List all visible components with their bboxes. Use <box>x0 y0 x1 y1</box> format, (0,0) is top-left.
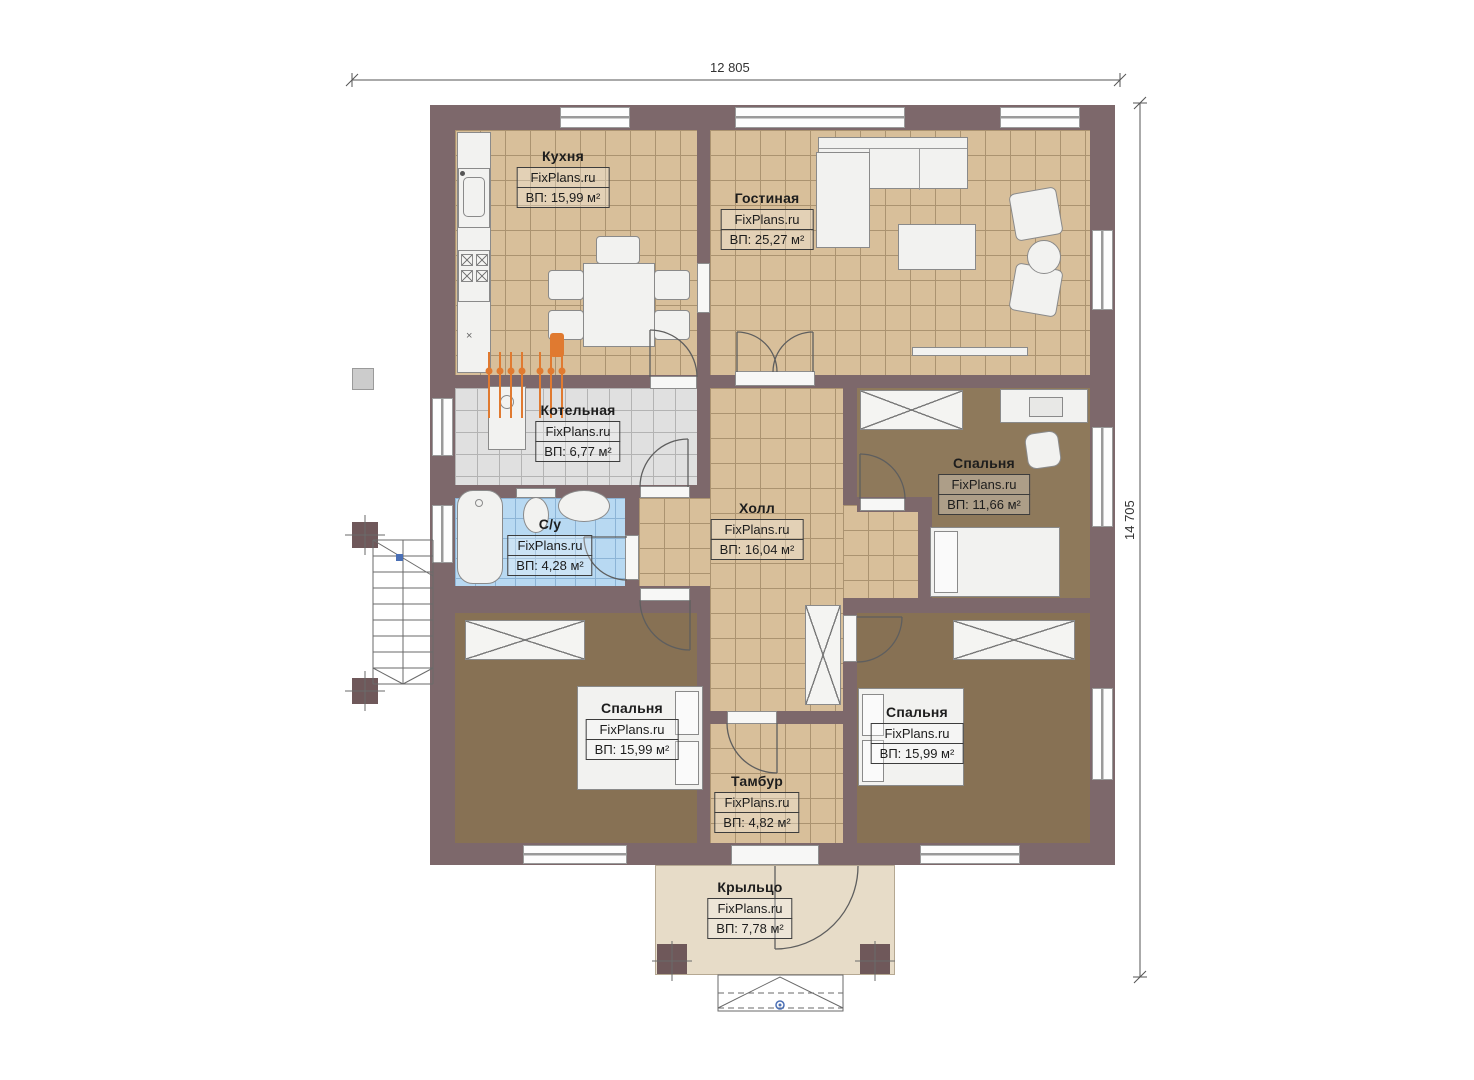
wardrobe <box>953 620 1075 660</box>
brand-watermark: FixPlans.ru <box>711 519 804 540</box>
room-label-living: Гостиная FixPlans.ru ВП: 25,27 м² <box>721 190 814 250</box>
room-label-hall: Холл FixPlans.ru ВП: 16,04 м² <box>711 500 804 560</box>
kitchen-chair <box>654 270 690 300</box>
coffee-table <box>898 224 976 270</box>
wall-kitchen-living-upper <box>697 130 710 263</box>
wall-bedroom-br-top <box>843 598 1090 613</box>
brand-watermark: FixPlans.ru <box>871 723 964 744</box>
window-bedroom-tr-right <box>1092 427 1113 527</box>
room-area: ВП: 15,99 м² <box>517 187 610 208</box>
window-bedroom-br-bottom <box>920 845 1020 864</box>
room-name: Крыльцо <box>707 879 792 895</box>
room-label-porch: Крыльцо FixPlans.ru ВП: 7,78 м² <box>707 879 792 939</box>
floor-plan: × <box>0 0 1474 1080</box>
side-table <box>1027 240 1061 274</box>
wall-kitchen-living-lower <box>697 313 710 375</box>
brand-watermark: FixPlans.ru <box>714 792 799 813</box>
stair-post <box>352 522 378 548</box>
room-name: Котельная <box>535 402 620 418</box>
room-area: ВП: 4,28 м² <box>507 555 592 576</box>
brand-watermark: FixPlans.ru <box>721 209 814 230</box>
room-label-vestibule: Тамбур FixPlans.ru ВП: 4,82 м² <box>714 773 799 833</box>
door-bedroom-br <box>843 615 857 662</box>
window-boiler-left <box>432 398 453 456</box>
room-area: ВП: 25,27 м² <box>721 229 814 250</box>
door-kitchen-hall <box>650 376 697 389</box>
room-area: ВП: 16,04 м² <box>711 539 804 560</box>
brand-watermark: FixPlans.ru <box>535 421 620 442</box>
stair-post <box>352 678 378 704</box>
door-boiler <box>640 486 690 498</box>
window-living-top-right <box>1000 107 1080 128</box>
room-name: Гостиная <box>721 190 814 206</box>
room-name: Спальня <box>871 704 964 720</box>
kitchen-table <box>583 263 655 347</box>
window-living-top <box>735 107 905 128</box>
room-name: Холл <box>711 500 804 516</box>
room-name: Кухня <box>517 148 610 164</box>
room-area: ВП: 7,78 м² <box>707 918 792 939</box>
brand-watermark: FixPlans.ru <box>517 167 610 188</box>
window-bedroom-bl-bottom <box>523 845 627 864</box>
radiator <box>550 333 564 357</box>
kitchen-chair <box>654 310 690 340</box>
brand-watermark: FixPlans.ru <box>938 474 1030 495</box>
wall-hall-bedroom-tr <box>843 388 857 505</box>
brand-watermark: FixPlans.ru <box>586 719 679 740</box>
window-bedroom-br-right <box>1092 688 1113 780</box>
kitchen-chair <box>548 270 584 300</box>
wardrobe <box>860 390 963 430</box>
kitchen-chair <box>596 236 640 264</box>
door-hall-vestibule <box>727 711 777 724</box>
room-name: Спальня <box>938 455 1030 471</box>
porch-post <box>657 944 687 974</box>
room-name: С/у <box>507 516 592 532</box>
dimension-height-label: 14 705 <box>1122 500 1137 540</box>
dimension-width-label: 12 805 <box>710 60 750 75</box>
room-name: Тамбур <box>714 773 799 789</box>
door-bathroom <box>625 535 639 580</box>
bathtub <box>457 490 503 584</box>
tv-stand <box>912 347 1028 356</box>
sofa-chaise <box>816 152 870 248</box>
pass-through-hatch <box>697 263 710 313</box>
room-label-bedroom-tr: Спальня FixPlans.ru ВП: 11,66 м² <box>938 455 1030 515</box>
kitchen-stove <box>458 250 490 302</box>
room-area: ВП: 15,99 м² <box>871 743 964 764</box>
room-label-bathroom: С/у FixPlans.ru ВП: 4,28 м² <box>507 516 592 576</box>
hall-right-arm-floor <box>843 505 918 598</box>
window-kitchen-top <box>560 107 630 128</box>
room-area: ВП: 15,99 м² <box>586 739 679 760</box>
brand-watermark: FixPlans.ru <box>507 535 592 556</box>
armchair <box>1008 186 1064 242</box>
window-bathroom-left <box>432 505 453 563</box>
porch-post <box>860 944 890 974</box>
bed-single <box>930 527 1060 597</box>
door-front-entrance <box>731 845 819 865</box>
door-bedroom-bl <box>640 588 690 601</box>
room-area: ВП: 11,66 м² <box>938 494 1030 515</box>
window-living-right <box>1092 230 1113 310</box>
room-label-kitchen: Кухня FixPlans.ru ВП: 15,99 м² <box>517 148 610 208</box>
door-bedroom-tr <box>860 498 905 511</box>
exterior-marker-square <box>352 368 374 390</box>
wall-boiler-hall <box>697 388 710 498</box>
door-living-hall <box>735 371 815 386</box>
room-label-boiler: Котельная FixPlans.ru ВП: 6,77 м² <box>535 402 620 462</box>
room-name: Спальня <box>586 700 679 716</box>
wall-corridor-bedroom-br <box>843 662 857 843</box>
room-label-bedroom-br: Спальня FixPlans.ru ВП: 15,99 м² <box>871 704 964 764</box>
desk <box>1000 389 1088 423</box>
room-area: ВП: 6,77 м² <box>535 441 620 462</box>
room-label-bedroom-bl: Спальня FixPlans.ru ВП: 15,99 м² <box>586 700 679 760</box>
wardrobe <box>465 620 585 660</box>
corridor-closet <box>805 605 841 705</box>
brand-watermark: FixPlans.ru <box>707 898 792 919</box>
kitchen-sink <box>458 168 490 228</box>
hall-left-arm-floor <box>639 498 710 586</box>
boiler-unit <box>488 386 526 450</box>
counter-x-mark: × <box>466 330 472 342</box>
room-area: ВП: 4,82 м² <box>714 812 799 833</box>
